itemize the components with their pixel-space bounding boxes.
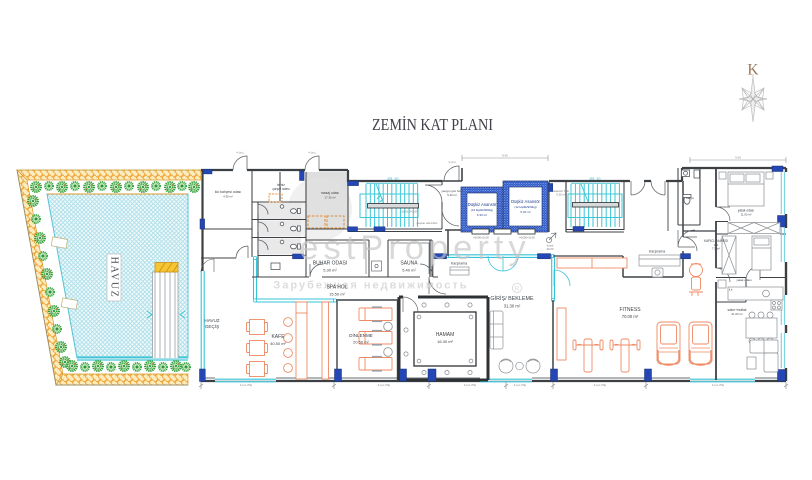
svg-text:17.30 m²: 17.30 m² bbox=[324, 196, 335, 200]
svg-text:masaj odası: masaj odası bbox=[321, 191, 339, 195]
svg-text:15.50 m²: 15.50 m² bbox=[329, 292, 345, 297]
svg-text:çarşaf odası: çarşaf odası bbox=[272, 187, 289, 191]
svg-text:BUHAR ODASI: BUHAR ODASI bbox=[313, 261, 347, 267]
svg-text:5.20 m²: 5.20 m² bbox=[447, 193, 457, 197]
svg-text:11.00 m²: 11.00 m² bbox=[741, 213, 752, 217]
svg-text:(12 kişilik/900kg): (12 kişilik/900kg) bbox=[514, 205, 536, 209]
svg-text:Düşkiz Asansör: Düşkiz Asansör bbox=[468, 202, 497, 207]
svg-text:9.60: 9.60 bbox=[735, 156, 741, 160]
svg-text:GİRİŞ/ BEKLEME: GİRİŞ/ BEKLEME bbox=[490, 295, 534, 302]
svg-text:7.5 m²: 7.5 m² bbox=[712, 247, 720, 251]
svg-text:4-(xx./5k): 4-(xx./5k) bbox=[594, 383, 607, 387]
svg-text:5.30 m²: 5.30 m² bbox=[477, 213, 487, 217]
svg-text:K: K bbox=[747, 62, 759, 79]
svg-text:Ø1 10: Ø1 10 bbox=[388, 176, 400, 181]
svg-text:4-(xx./5k): 4-(xx./5k) bbox=[378, 383, 391, 387]
svg-text:5.40 m²: 5.40 m² bbox=[402, 268, 416, 273]
svg-text:21.00 m²: 21.00 m² bbox=[731, 312, 742, 316]
svg-text:5.30 m²: 5.30 m² bbox=[323, 268, 337, 273]
svg-text:Ø1 10: Ø1 10 bbox=[590, 176, 602, 181]
svg-text:4-(xx): 4-(xx) bbox=[236, 151, 243, 155]
svg-text:SAUNA: SAUNA bbox=[400, 261, 418, 267]
svg-text:20.50 m²: 20.50 m² bbox=[353, 340, 369, 345]
svg-text:4-(xx./5k): 4-(xx./5k) bbox=[240, 383, 253, 387]
svg-text:peçete oda bölm: peçete oda bölm bbox=[417, 221, 438, 225]
svg-text:Karşılama: Karşılama bbox=[649, 250, 665, 254]
svg-text:16.30 m²: 16.30 m² bbox=[437, 339, 453, 344]
svg-text:Зарубежная недвижимость: Зарубежная недвижимость bbox=[273, 280, 468, 292]
svg-text:30.00: 30.00 bbox=[547, 247, 554, 251]
svg-text:k.b.: k.b. bbox=[729, 288, 733, 292]
svg-text:(12 kişilik/900kg): (12 kişilik/900kg) bbox=[471, 208, 493, 212]
svg-text:HAVUZ: HAVUZ bbox=[109, 257, 120, 299]
svg-text:31.30 m²: 31.30 m² bbox=[504, 304, 521, 309]
svg-text:4-(xx./5k): 4-(xx./5k) bbox=[464, 383, 477, 387]
svg-text:HAMAM: HAMAM bbox=[436, 332, 455, 338]
svg-text:4.30 m²: 4.30 m² bbox=[223, 195, 233, 199]
svg-text:banyo: banyo bbox=[686, 196, 695, 200]
svg-text:klo bahçesi odası: klo bahçesi odası bbox=[215, 190, 241, 194]
svg-text:SPA HOL: SPA HOL bbox=[326, 285, 347, 291]
svg-text:4-(xx): 4-(xx) bbox=[308, 151, 315, 155]
svg-text:10x16,3=1,63: 10x16,3=1,63 bbox=[400, 210, 417, 214]
svg-text:5.20 m²: 5.20 m² bbox=[556, 193, 566, 197]
svg-text:40.50 m²: 40.50 m² bbox=[270, 341, 286, 346]
svg-text:Karşılama: Karşılama bbox=[451, 262, 467, 266]
svg-text:DİNLENME: DİNLENME bbox=[349, 332, 373, 338]
svg-text:70.00 m²: 70.00 m² bbox=[622, 314, 639, 319]
svg-text:FITNESS: FITNESS bbox=[619, 307, 641, 313]
svg-text:4-(xx./5k): 4-(xx./5k) bbox=[514, 383, 527, 387]
svg-text:GEÇİŞ: GEÇİŞ bbox=[205, 323, 219, 329]
svg-text:5.30 m²: 5.30 m² bbox=[520, 210, 530, 214]
svg-text:4-(xx): 4-(xx) bbox=[448, 160, 455, 164]
svg-text:R: R bbox=[515, 286, 520, 293]
svg-text:HAVUZ: HAVUZ bbox=[204, 318, 219, 323]
svg-text:KAFE: KAFE bbox=[271, 334, 285, 340]
svg-text:yatak odası: yatak odası bbox=[736, 278, 752, 282]
svg-text:Düşkiz Asansör: Düşkiz Asansör bbox=[511, 199, 540, 204]
svg-text:8.90: 8.90 bbox=[502, 154, 508, 158]
svg-text:4-(xx./5k): 4-(xx./5k) bbox=[712, 383, 725, 387]
svg-text:ZEMİN KAT PLANI: ZEMİN KAT PLANI bbox=[372, 115, 493, 134]
